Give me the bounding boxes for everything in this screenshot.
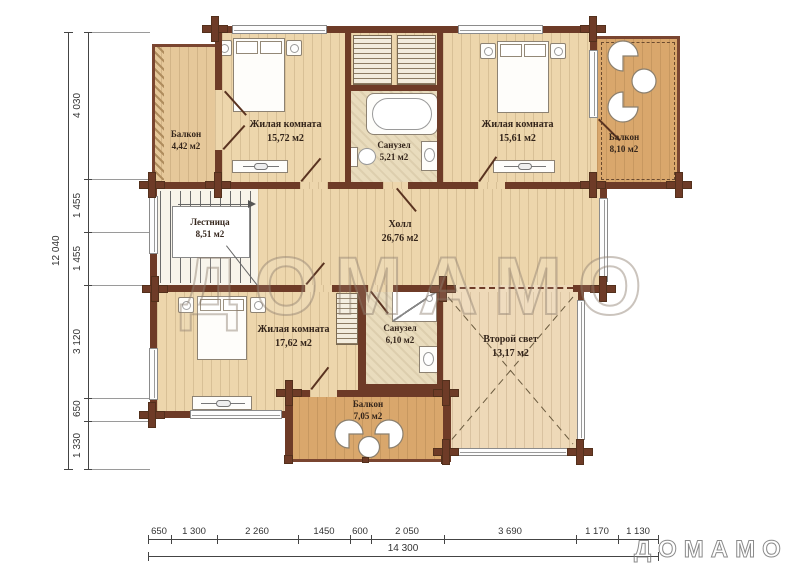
room-label: Холл 26,76 м2 <box>365 218 435 245</box>
log-joint <box>205 172 231 198</box>
balcony-furniture-bottom <box>330 416 408 464</box>
balcony-post <box>284 455 293 464</box>
dimension-label: 4 030 <box>72 75 86 135</box>
wall-bath-bottom-right <box>437 292 443 390</box>
second-light-cross-lines <box>445 294 576 447</box>
bathtub-basin <box>372 98 432 130</box>
room-name: Жилая комната <box>238 118 333 132</box>
room-label: Балкон 8,10 м2 <box>592 131 656 155</box>
bed-symbol <box>197 296 247 360</box>
pillow <box>200 299 221 311</box>
door-gap <box>215 90 222 150</box>
room-area: 4,42 м2 <box>158 140 214 152</box>
window <box>458 448 568 456</box>
sink-basin <box>423 352 434 366</box>
dimension-tick <box>298 535 299 544</box>
pillow <box>260 41 282 54</box>
log-joint <box>590 276 616 302</box>
window <box>190 410 282 419</box>
dresser-knob <box>254 163 268 170</box>
dimension-label: 1 300 <box>177 526 211 537</box>
log-joint <box>202 16 228 42</box>
room-area: 8,51 м2 <box>174 228 246 240</box>
room-label: Жилая комната 17,62 м2 <box>246 323 341 350</box>
room-area: 17,62 м2 <box>246 337 341 351</box>
bed-symbol <box>497 41 549 113</box>
wall-bath-top-top <box>345 85 443 91</box>
room-label: Второй свет 13,17 м2 <box>468 333 553 360</box>
dimension-tick <box>148 552 149 561</box>
door-gap <box>310 390 337 397</box>
dimension-label: 2 050 <box>390 526 424 537</box>
dimension-label: 3 120 <box>72 311 86 371</box>
window <box>458 25 543 34</box>
window <box>232 25 327 34</box>
room-area: 7,05 м2 <box>334 410 402 422</box>
dimension-label: 1450 <box>307 526 341 537</box>
room-label: Балкон 4,42 м2 <box>158 128 214 152</box>
window <box>149 196 158 254</box>
table-icon <box>632 69 656 93</box>
room-area: 5,21 м2 <box>362 151 426 163</box>
dimension-total-label: 12 040 <box>51 221 65 281</box>
wall-bedroom-bottom-right <box>358 292 366 390</box>
room-area: 15,61 м2 <box>470 132 565 146</box>
lamp-icon <box>554 47 563 56</box>
dimension-label: 1 455 <box>72 228 86 288</box>
door-gap <box>478 182 505 189</box>
dimension-label: 1 130 <box>621 526 655 537</box>
balcony-furniture-top-right <box>598 36 662 130</box>
window <box>599 198 608 282</box>
extension-line <box>92 398 150 399</box>
room-label: Балкон 7,05 м2 <box>334 398 402 422</box>
room-area: 8,10 м2 <box>592 143 656 155</box>
stair-arrow-icon <box>248 200 256 208</box>
room-name: Жилая комната <box>246 323 341 337</box>
room-area: 6,10 м2 <box>368 334 432 346</box>
room-name: Холл <box>365 218 435 232</box>
table-icon <box>359 437 380 458</box>
room-label: Жилая комната 15,61 м2 <box>470 118 565 145</box>
floor-plan: Балкон 4,42 м2 Жилая комната 15,72 м2 Са… <box>0 0 800 569</box>
room-label: Санузел 5,21 м2 <box>362 139 426 163</box>
room-name: Лестница <box>174 216 246 228</box>
dimension-tick <box>217 535 218 544</box>
dimension-line <box>88 32 89 470</box>
dimension-tick <box>658 535 659 544</box>
stair-direction-line <box>178 204 248 205</box>
dimension-tick <box>444 535 445 544</box>
window <box>589 50 598 118</box>
dimension-label: 600 <box>343 526 377 537</box>
dresser <box>192 396 252 410</box>
dimension-tick <box>64 32 73 33</box>
window <box>149 348 158 400</box>
dimension-line <box>148 539 658 540</box>
wall-balcony-bottom-left <box>285 397 293 462</box>
extension-line <box>92 469 150 470</box>
log-joint <box>433 439 459 465</box>
pillow <box>500 44 522 57</box>
wall-balcony-tl-top <box>152 44 215 47</box>
room-name: Балкон <box>334 398 402 410</box>
lamp-icon <box>290 44 299 53</box>
log-joint <box>139 402 165 428</box>
log-joint <box>276 380 302 406</box>
room-name: Санузел <box>362 139 426 151</box>
log-joint <box>139 172 165 198</box>
room-area: 26,76 м2 <box>365 232 435 246</box>
wall-bedroom-tl-right <box>345 33 351 182</box>
second-light-open-edge <box>450 287 573 289</box>
window <box>577 300 585 440</box>
log-joint <box>666 172 692 198</box>
dimension-label: 1 170 <box>580 526 614 537</box>
extension-line <box>92 232 150 233</box>
dimension-label: 1 455 <box>72 175 86 235</box>
dresser-knob <box>216 400 231 407</box>
dimension-label: 650 <box>142 526 176 537</box>
log-joint <box>580 16 606 42</box>
pillow <box>524 44 546 57</box>
dimension-total-label: 14 300 <box>378 543 428 554</box>
dimension-label: 3 690 <box>493 526 527 537</box>
toilet-tank <box>350 147 358 167</box>
lamp-icon <box>254 301 263 310</box>
room-area: 13,17 м2 <box>468 347 553 361</box>
pillow <box>236 41 258 54</box>
room-name: Жилая комната <box>470 118 565 132</box>
dimension-label: 1 330 <box>72 415 86 475</box>
extension-line <box>92 32 150 33</box>
chair-icon <box>602 89 641 128</box>
log-joint <box>430 276 456 302</box>
balcony-post <box>362 457 369 463</box>
lamp-icon <box>182 301 191 310</box>
dimension-tick <box>576 535 577 544</box>
dresser-knob <box>518 163 532 170</box>
wardrobe <box>397 35 436 85</box>
dimension-tick <box>658 552 659 561</box>
log-wall-hatch <box>154 47 164 180</box>
log-joint <box>567 439 593 465</box>
dresser <box>232 160 288 173</box>
wall-balcony-tr-right <box>677 36 680 186</box>
lamp-icon <box>484 47 493 56</box>
wardrobe <box>353 35 392 85</box>
door-gap <box>305 285 332 292</box>
door-gap <box>300 182 328 189</box>
wall-balcony-tr-top <box>597 36 680 39</box>
log-joint <box>580 172 606 198</box>
dimension-tick <box>618 535 619 544</box>
room-label: Санузел 6,10 м2 <box>368 322 432 346</box>
pillow <box>223 299 244 311</box>
dresser <box>493 160 555 173</box>
room-label: Жилая комната 15,72 м2 <box>238 118 333 145</box>
bed-symbol <box>233 38 285 112</box>
dimension-label: 2 260 <box>240 526 274 537</box>
dimension-line <box>148 556 658 557</box>
room-name: Санузел <box>368 322 432 334</box>
wall-bedroom-tr-left <box>437 33 443 182</box>
room-name: Балкон <box>158 128 214 140</box>
wall-balcony-tl-left <box>152 44 155 182</box>
room-name: Второй свет <box>468 333 553 347</box>
log-joint <box>433 380 459 406</box>
room-label: Лестница 8,51 м2 <box>174 216 246 240</box>
room-name: Балкон <box>592 131 656 143</box>
room-area: 15,72 м2 <box>238 132 333 146</box>
chair-icon <box>602 36 641 74</box>
log-joint <box>142 276 168 302</box>
dimension-line <box>68 32 69 470</box>
